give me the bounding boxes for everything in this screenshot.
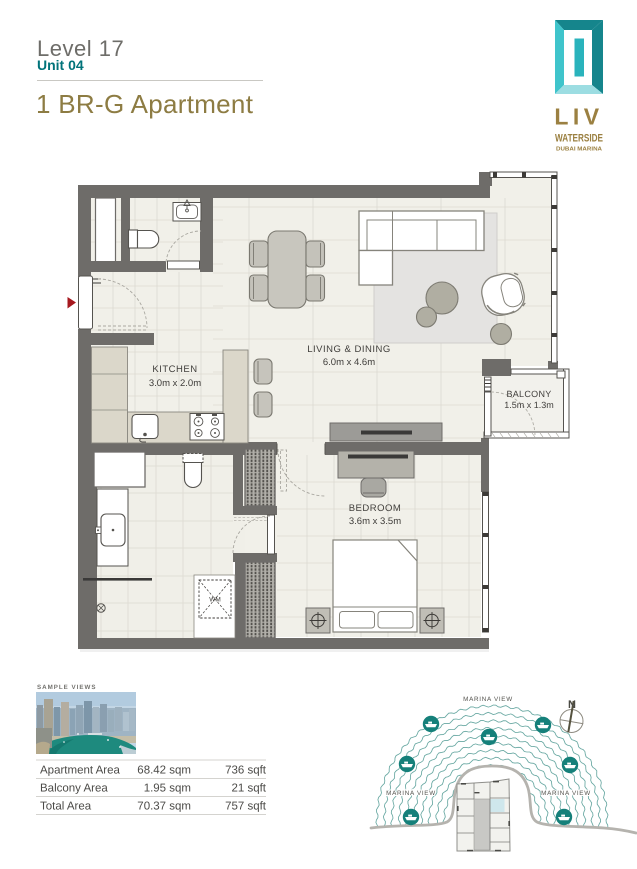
svg-text:736 sqft: 736 sqft [225,765,267,777]
svg-text:N: N [568,699,576,711]
svg-text:LIVING & DINING: LIVING & DINING [307,344,391,355]
svg-text:Total Area: Total Area [40,801,92,813]
svg-text:BALCONY: BALCONY [506,389,551,399]
svg-text:6.0m x 4.6m: 6.0m x 4.6m [323,357,375,368]
svg-text:Balcony Area: Balcony Area [40,783,108,795]
svg-text:SAMPLE VIEWS: SAMPLE VIEWS [37,684,96,691]
svg-text:1.95 sqm: 1.95 sqm [144,783,191,795]
svg-text:Apartment Area: Apartment Area [40,765,121,777]
svg-text:3.0m x 2.0m: 3.0m x 2.0m [149,378,201,389]
svg-text:BEDROOM: BEDROOM [349,503,402,514]
svg-text:1.5m x 1.3m: 1.5m x 1.3m [504,400,554,410]
svg-text:KITCHEN: KITCHEN [152,364,197,375]
svg-text:WM: WM [209,597,221,604]
svg-text:70.37 sqm: 70.37 sqm [137,801,191,813]
svg-text:68.42 sqm: 68.42 sqm [137,765,191,777]
svg-text:MARINA VIEW: MARINA VIEW [386,790,436,797]
svg-text:MARINA VIEW: MARINA VIEW [463,696,513,703]
svg-text:21 sqft: 21 sqft [231,783,266,795]
svg-text:MARINA VIEW: MARINA VIEW [541,790,591,797]
svg-text:3.6m x 3.5m: 3.6m x 3.5m [349,516,401,527]
svg-text:757 sqft: 757 sqft [225,801,267,813]
